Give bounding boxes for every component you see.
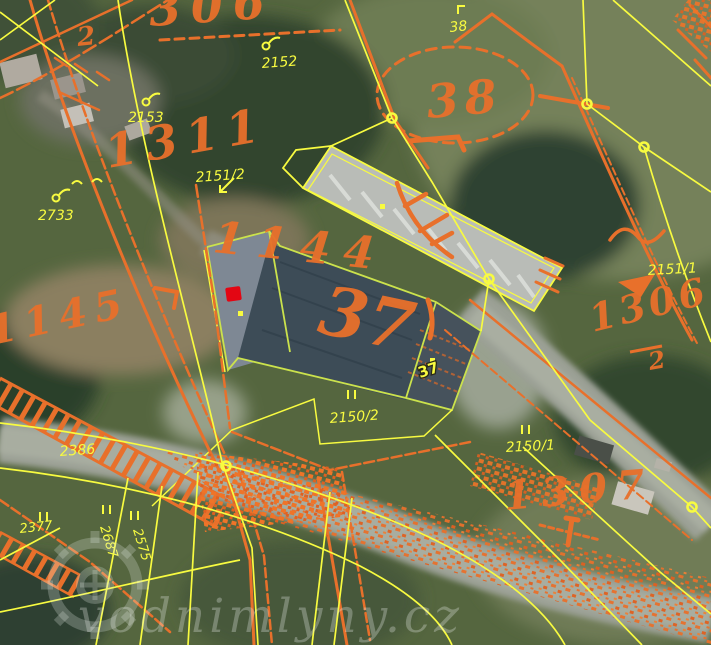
cadastral-map[interactable]: 306 2 1311 1144 1145 38 37 1306 2 1307 2… (0, 0, 711, 645)
mill-location-marker[interactable] (225, 286, 242, 302)
map-viewport[interactable]: 306 2 1311 1144 1145 38 37 1306 2 1307 2… (0, 0, 711, 645)
parcel-label: 2152 (261, 54, 298, 72)
parcel-label: 2386 (59, 442, 96, 460)
old-parcel-label: 2 (75, 21, 97, 53)
building-point-dot (238, 311, 243, 316)
parcel-label: 2733 (38, 208, 74, 224)
watermark-text: vodnimlyny.cz (78, 589, 463, 644)
building-point-dot (380, 204, 385, 209)
parcel-label: 2150/1 (505, 437, 555, 456)
parcel-label: 2153 (128, 110, 164, 126)
old-parcel-label: 38 (424, 69, 504, 129)
parcel-label: 2151/1 (647, 260, 697, 279)
parcel-label: 38 (449, 18, 468, 36)
